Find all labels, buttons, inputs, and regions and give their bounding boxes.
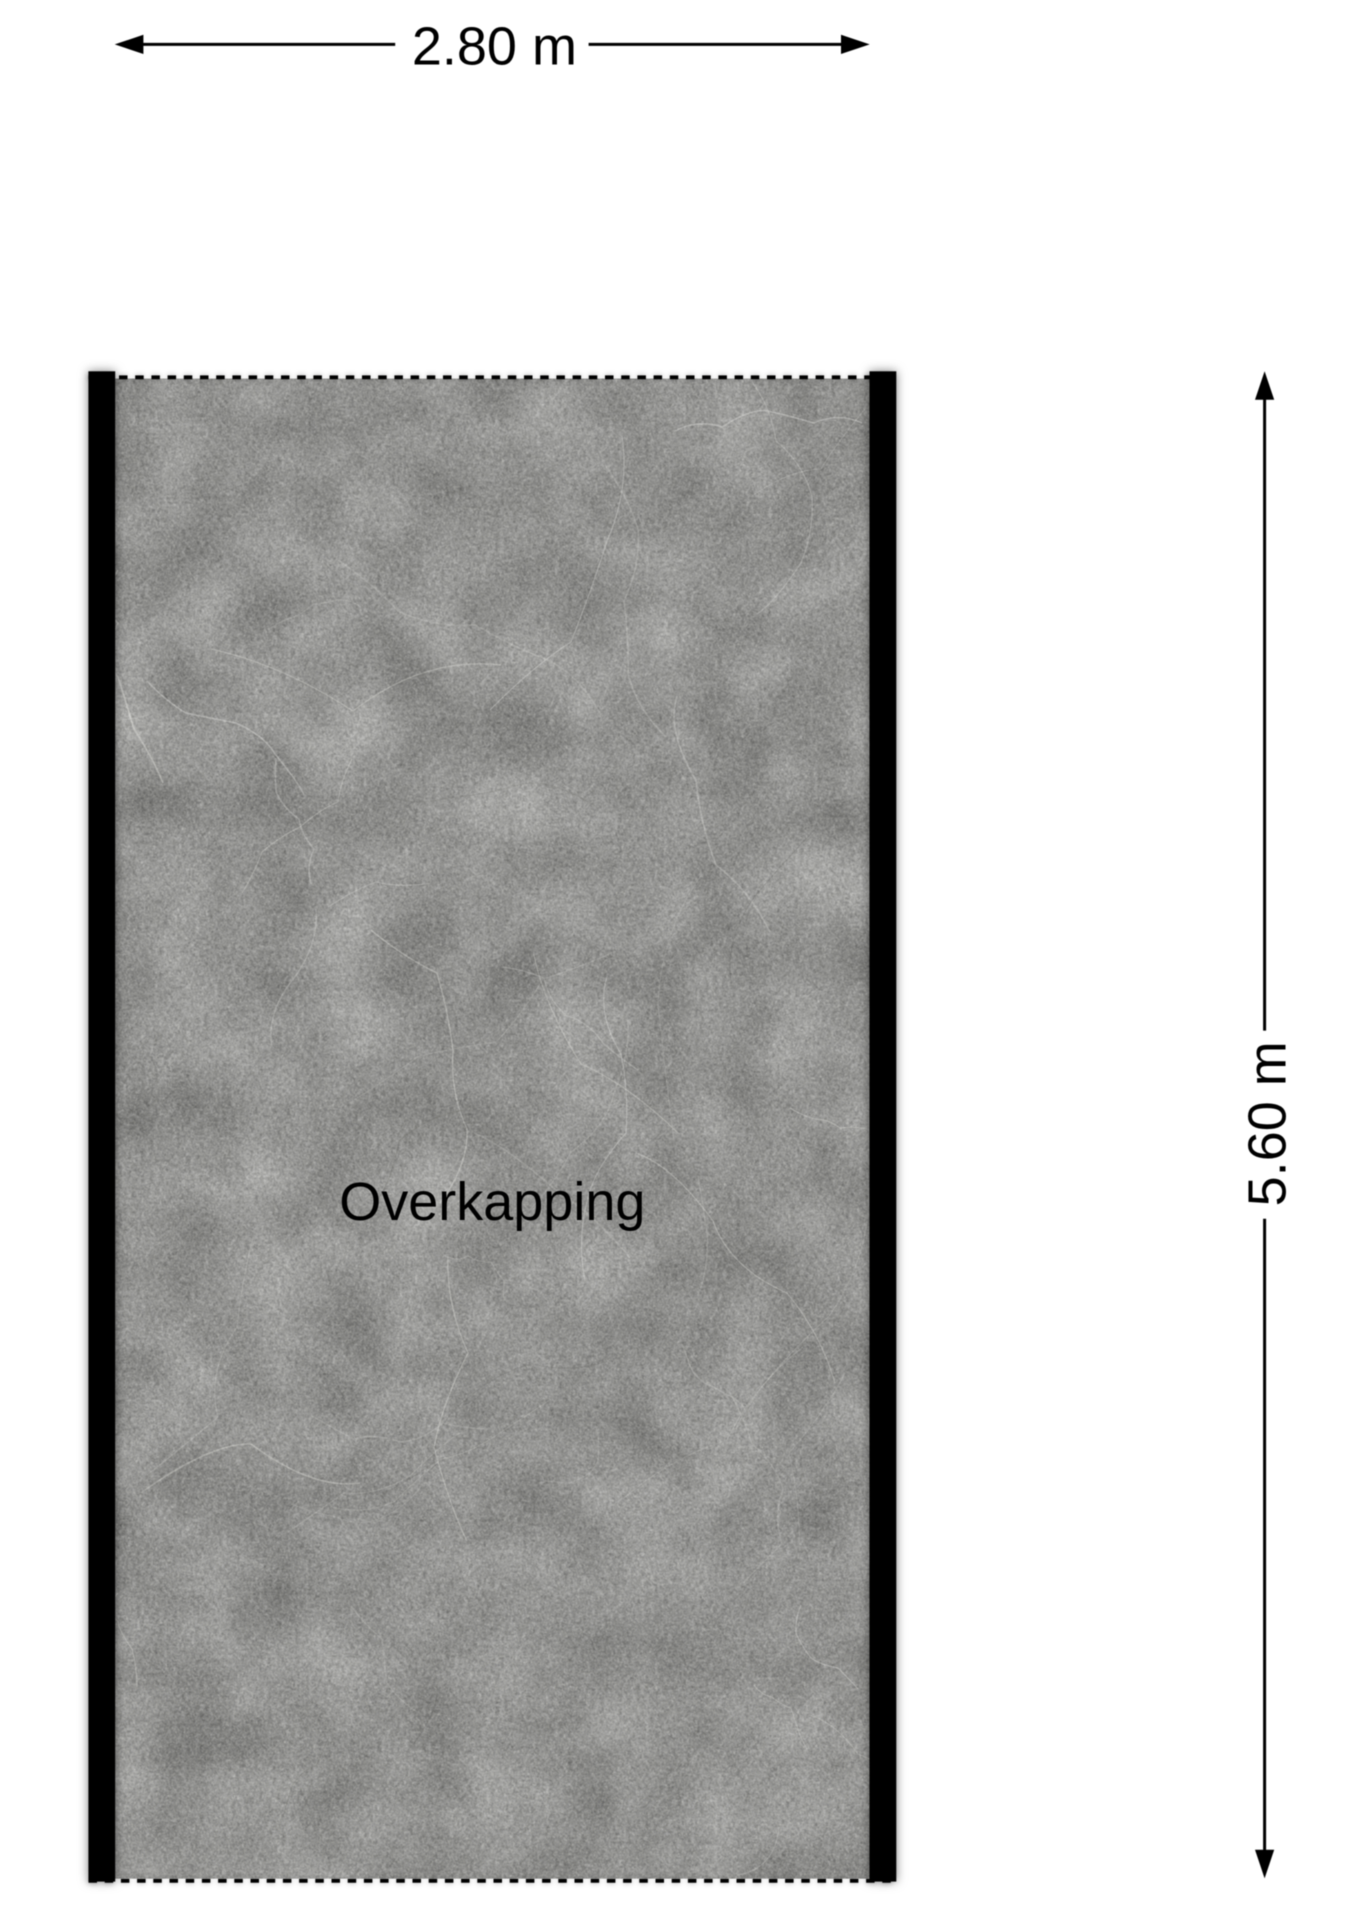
svg-text:Overkapping: Overkapping	[339, 1172, 645, 1232]
svg-text:2.80 m: 2.80 m	[412, 16, 577, 76]
svg-text:5.60 m: 5.60 m	[1237, 1041, 1297, 1206]
